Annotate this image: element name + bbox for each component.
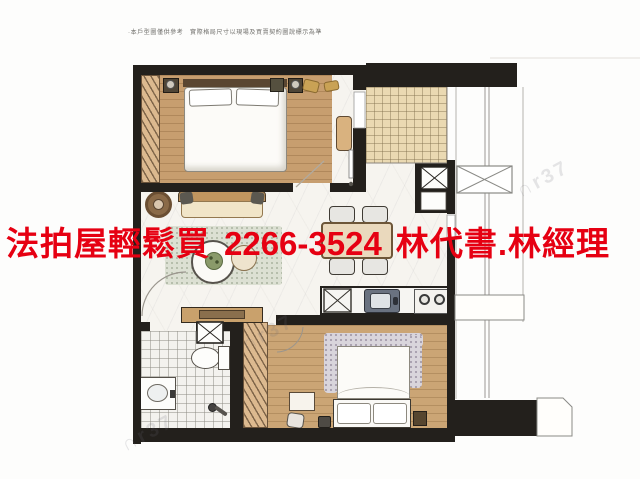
ad-phone-number: 2266-3524 (224, 225, 382, 262)
cabinet-x-icon (324, 289, 351, 312)
floor-plan-flyer: ·本戶型圖僅供參考 實際格局尺寸以現場及買賣契約圖說標示為準 (0, 0, 640, 479)
bathroom-door-panel (354, 92, 365, 128)
utility-box-icon (421, 167, 448, 210)
kitchen-ledge-outline (455, 295, 524, 320)
bedroom1-door-leaf (296, 161, 324, 187)
washer-box-icon (197, 322, 223, 343)
bathroom-door-arc (142, 272, 186, 316)
dressing-mirror-icon (349, 150, 353, 186)
ad-text-left: 法拍屋輕鬆買 (6, 225, 210, 262)
ad-overlay-text: 法拍屋輕鬆買2266-3524林代書.林經理 (6, 217, 640, 265)
elevator-shaft-icon (457, 166, 512, 193)
ad-text-right: 林代書.林經理 (396, 225, 610, 262)
balcony-corner-outline (537, 398, 572, 436)
caption-illegible-text: ·本戶型圖僅供參考 實際格局尺寸以現場及買賣契約圖說標示為準 (128, 27, 322, 36)
